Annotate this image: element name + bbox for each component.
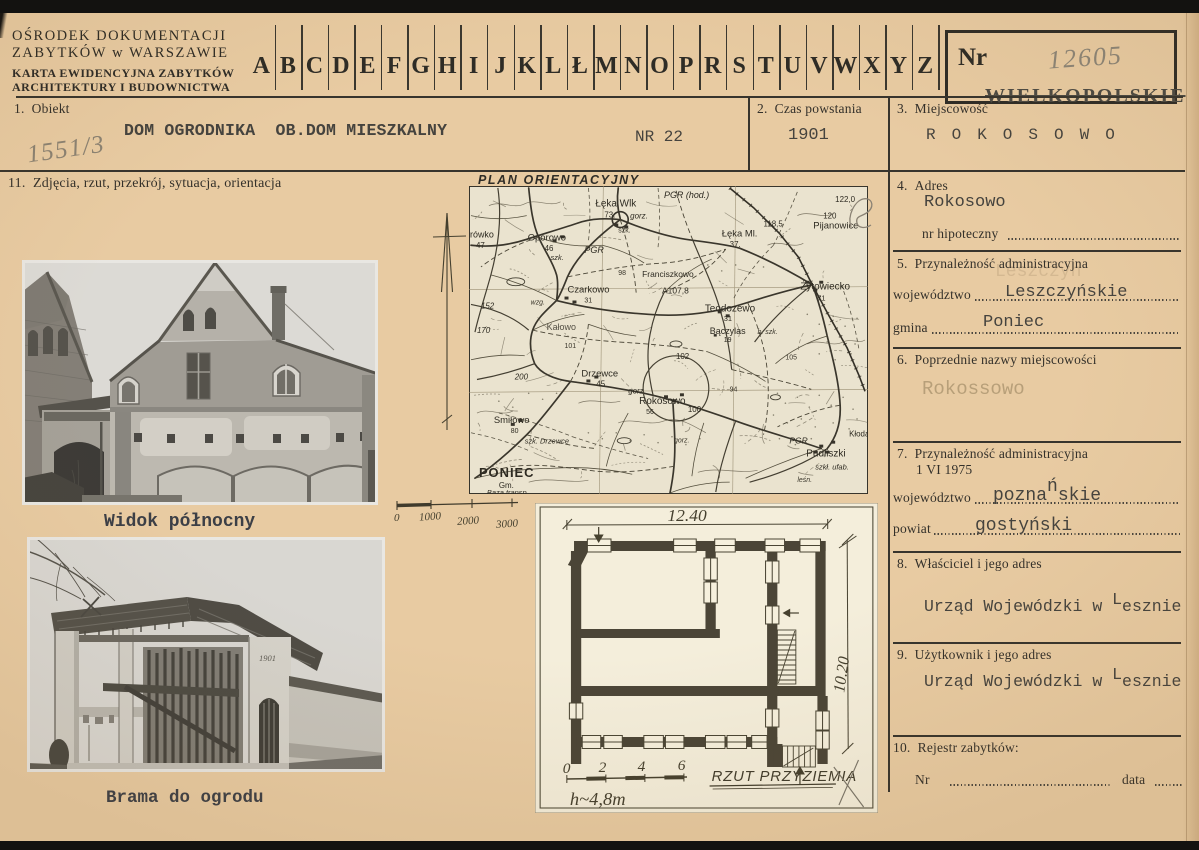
svg-text:Bączylas: Bączylas: [710, 326, 746, 336]
svg-text:RZUT PRZYZIEMIA: RZUT PRZYZIEMIA: [712, 769, 857, 785]
svg-text:71: 71: [817, 294, 825, 303]
svg-text:gorz.: gorz.: [674, 438, 690, 445]
svg-text:Pudliszki: Pudliszki: [806, 449, 845, 460]
svg-text:Rokosowo: Rokosowo: [639, 396, 686, 407]
svg-text:h~4,8m: h~4,8m: [570, 789, 626, 809]
svg-text:Kłoda: Kłoda: [849, 430, 868, 439]
svg-text:98: 98: [618, 270, 626, 277]
svg-text:rówko: rówko: [470, 229, 494, 239]
svg-text:56: 56: [646, 409, 654, 416]
svg-text:Żytowiecko: Żytowiecko: [800, 282, 850, 293]
svg-text:3000: 3000: [495, 517, 519, 531]
svg-text:152: 152: [481, 301, 495, 310]
svg-text:0: 0: [394, 512, 400, 524]
svg-text:19: 19: [724, 337, 732, 344]
svg-text:wzg.: wzg.: [531, 299, 545, 306]
svg-text:Smiłowo: Smiłowo: [494, 414, 530, 425]
svg-text:100: 100: [688, 405, 702, 414]
svg-text:Oporowo: Oporowo: [528, 231, 566, 242]
svg-text:47: 47: [476, 241, 485, 250]
svg-text:200: 200: [514, 373, 529, 382]
svg-text:73.: 73.: [604, 211, 615, 220]
svg-text:A107,8: A107,8: [662, 286, 689, 296]
svg-text:105: 105: [785, 355, 797, 362]
svg-text:PGR: PGR: [789, 436, 807, 446]
svg-text:leśn.: leśn.: [797, 477, 812, 484]
svg-text:PGR: PGR: [584, 245, 604, 255]
svg-text:2: 2: [599, 759, 607, 776]
svg-text:102: 102: [676, 352, 689, 361]
svg-text:1000: 1000: [419, 510, 442, 524]
svg-text:gorz.: gorz.: [628, 386, 646, 395]
svg-text:80: 80: [511, 428, 519, 435]
svg-text:101: 101: [565, 343, 577, 350]
svg-text:6: 6: [678, 757, 686, 774]
svg-text:szk. Drzewce: szk. Drzewce: [525, 437, 569, 446]
svg-text:0: 0: [563, 760, 571, 777]
svg-text:118,5: 118,5: [764, 220, 784, 229]
svg-text:PGR (hod.): PGR (hod.): [664, 190, 709, 200]
svg-text:Kałowo: Kałowo: [547, 322, 576, 332]
svg-text:Czarkowo: Czarkowo: [568, 284, 610, 295]
svg-text:12.40: 12.40: [667, 506, 707, 525]
svg-text:170: 170: [477, 326, 491, 335]
svg-text:gorz.: gorz.: [630, 212, 648, 221]
svg-text:szk.: szk.: [618, 227, 630, 234]
svg-text:46: 46: [545, 244, 554, 253]
svg-text:37.: 37.: [730, 240, 741, 249]
svg-text:31: 31: [724, 314, 732, 323]
svg-text:45: 45: [596, 379, 605, 388]
svg-text:1901: 1901: [259, 653, 276, 663]
svg-text:b. szk.: b. szk.: [758, 329, 778, 336]
svg-text:szk.: szk.: [551, 253, 564, 262]
svg-text:Franciszkowo: Franciszkowo: [642, 269, 694, 279]
svg-text:2000: 2000: [457, 514, 480, 528]
svg-text:120: 120: [823, 212, 837, 221]
svg-text:szkł. ufab.: szkł. ufab.: [815, 462, 849, 471]
svg-text:Łęka Ml.: Łęka Ml.: [722, 227, 758, 238]
svg-text:94: 94: [730, 386, 738, 393]
svg-text:31: 31: [584, 298, 592, 305]
svg-text:Drzewce: Drzewce: [581, 368, 618, 379]
svg-text:PONIEC: PONIEC: [479, 465, 535, 480]
svg-text:Łęka Wlk: Łęka Wlk: [595, 199, 636, 210]
svg-text:4: 4: [638, 758, 646, 775]
svg-text:Teodozewo: Teodozewo: [705, 303, 756, 314]
